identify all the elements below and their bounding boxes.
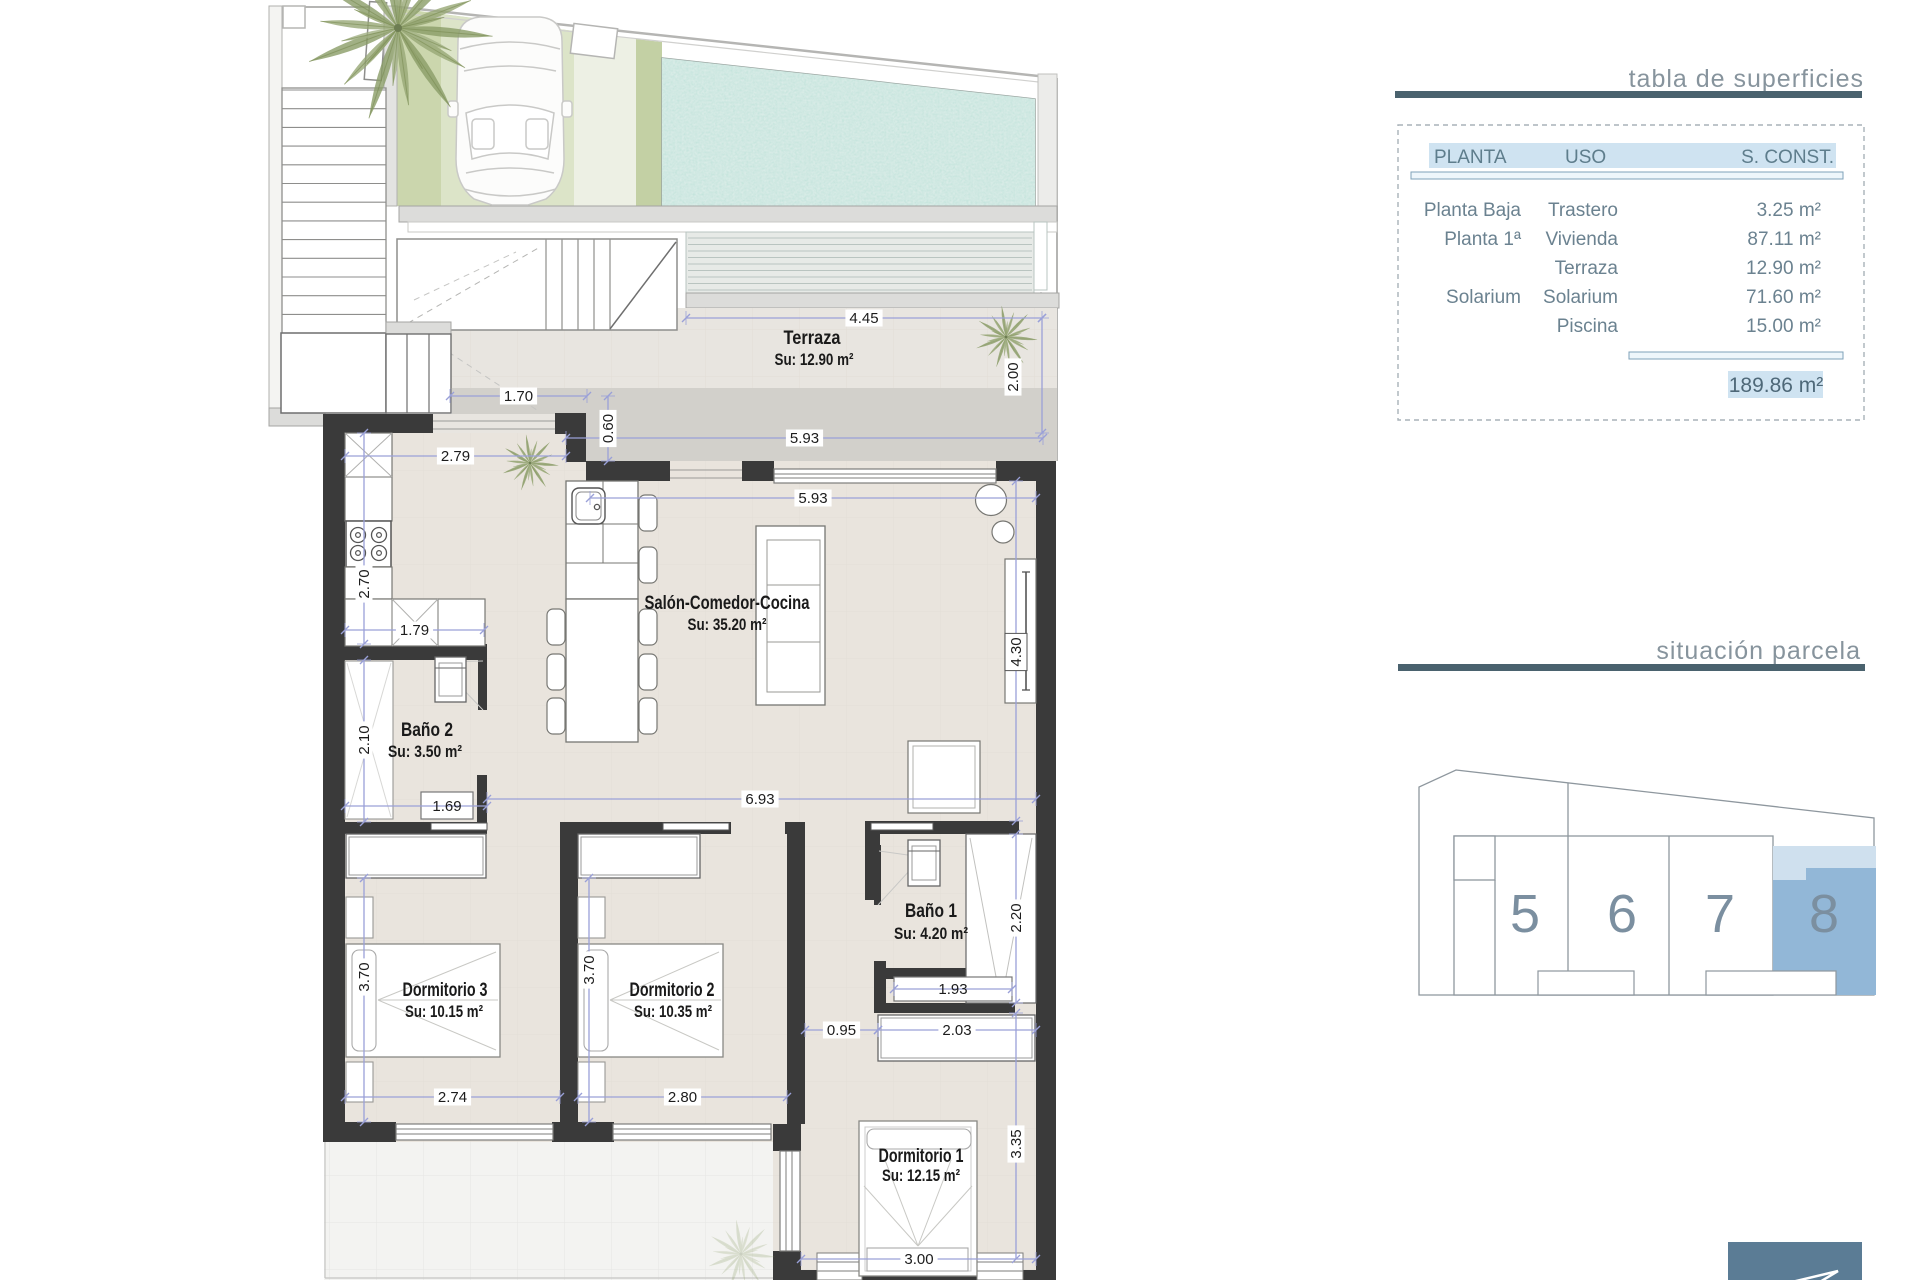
- svg-text:71.60 m²: 71.60 m²: [1746, 287, 1821, 308]
- svg-text:12.90 m²: 12.90 m²: [1746, 258, 1821, 279]
- svg-text:Baño 2: Baño 2: [401, 720, 453, 741]
- svg-text:situación parcela: situación parcela: [1656, 637, 1861, 665]
- svg-text:0.60: 0.60: [600, 414, 617, 443]
- svg-text:1.79: 1.79: [400, 622, 429, 639]
- svg-text:Dormitorio 1: Dormitorio 1: [879, 1146, 964, 1167]
- svg-text:Vivienda: Vivienda: [1545, 229, 1618, 250]
- svg-text:Planta Baja: Planta Baja: [1424, 200, 1522, 221]
- svg-text:3.00: 3.00: [904, 1251, 933, 1268]
- svg-text:Salón-Comedor-Cocina: Salón-Comedor-Cocina: [645, 592, 810, 614]
- svg-text:2.70: 2.70: [356, 569, 373, 598]
- svg-text:Su: 10.15 m²: Su: 10.15 m²: [405, 1003, 483, 1021]
- svg-text:2.74: 2.74: [438, 1089, 467, 1106]
- svg-text:Solarium: Solarium: [1446, 287, 1521, 308]
- svg-text:4.30: 4.30: [1008, 637, 1025, 666]
- svg-text:8: 8: [1809, 884, 1839, 944]
- svg-text:4.45: 4.45: [849, 310, 878, 327]
- svg-text:Su: 12.90 m²: Su: 12.90 m²: [775, 350, 854, 369]
- svg-text:1.93: 1.93: [938, 981, 967, 998]
- svg-text:Dormitorio 2: Dormitorio 2: [630, 980, 715, 1001]
- svg-text:3.25 m²: 3.25 m²: [1757, 200, 1821, 221]
- svg-text:3.70: 3.70: [581, 955, 598, 984]
- svg-text:Su: 10.35 m²: Su: 10.35 m²: [634, 1003, 712, 1021]
- svg-text:USO: USO: [1565, 147, 1606, 168]
- svg-text:2.79: 2.79: [441, 448, 470, 465]
- svg-text:3.35: 3.35: [1008, 1129, 1025, 1158]
- svg-text:2.10: 2.10: [356, 725, 373, 754]
- svg-text:2.20: 2.20: [1008, 903, 1025, 932]
- svg-text:1.70: 1.70: [504, 388, 533, 405]
- svg-text:Su: 35.20 m²: Su: 35.20 m²: [688, 615, 767, 634]
- svg-text:Baño 1: Baño 1: [905, 901, 957, 922]
- svg-text:PLANTA: PLANTA: [1434, 147, 1507, 168]
- svg-text:Planta 1ª: Planta 1ª: [1444, 229, 1522, 250]
- svg-text:5.93: 5.93: [790, 430, 819, 447]
- svg-text:Terraza: Terraza: [784, 327, 841, 349]
- svg-text:6.93: 6.93: [745, 791, 774, 808]
- svg-text:S. CONST.: S. CONST.: [1741, 147, 1834, 168]
- svg-text:0.95: 0.95: [827, 1022, 856, 1039]
- svg-text:7: 7: [1705, 884, 1735, 944]
- svg-text:2.80: 2.80: [668, 1089, 697, 1106]
- svg-text:6: 6: [1607, 884, 1637, 944]
- svg-text:3.70: 3.70: [356, 962, 373, 991]
- svg-text:Su: 4.20 m²: Su: 4.20 m²: [894, 925, 968, 943]
- svg-text:5: 5: [1510, 884, 1540, 944]
- svg-text:15.00 m²: 15.00 m²: [1746, 316, 1821, 337]
- svg-text:Solarium: Solarium: [1543, 287, 1618, 308]
- svg-text:Piscina: Piscina: [1557, 316, 1619, 337]
- svg-text:189.86 m²: 189.86 m²: [1729, 374, 1824, 397]
- svg-text:2.00: 2.00: [1005, 362, 1022, 391]
- svg-text:1.69: 1.69: [432, 798, 461, 815]
- svg-text:2.03: 2.03: [942, 1022, 971, 1039]
- svg-text:Su: 3.50 m²: Su: 3.50 m²: [388, 743, 462, 761]
- svg-text:tabla de superficies: tabla de superficies: [1629, 65, 1864, 93]
- svg-text:Trastero: Trastero: [1548, 200, 1618, 221]
- svg-text:Terraza: Terraza: [1555, 258, 1619, 279]
- svg-text:87.11 m²: 87.11 m²: [1747, 229, 1821, 250]
- svg-text:Dormitorio 3: Dormitorio 3: [403, 980, 488, 1001]
- svg-text:5.93: 5.93: [798, 490, 827, 507]
- svg-text:Su: 12.15 m²: Su: 12.15 m²: [882, 1167, 960, 1185]
